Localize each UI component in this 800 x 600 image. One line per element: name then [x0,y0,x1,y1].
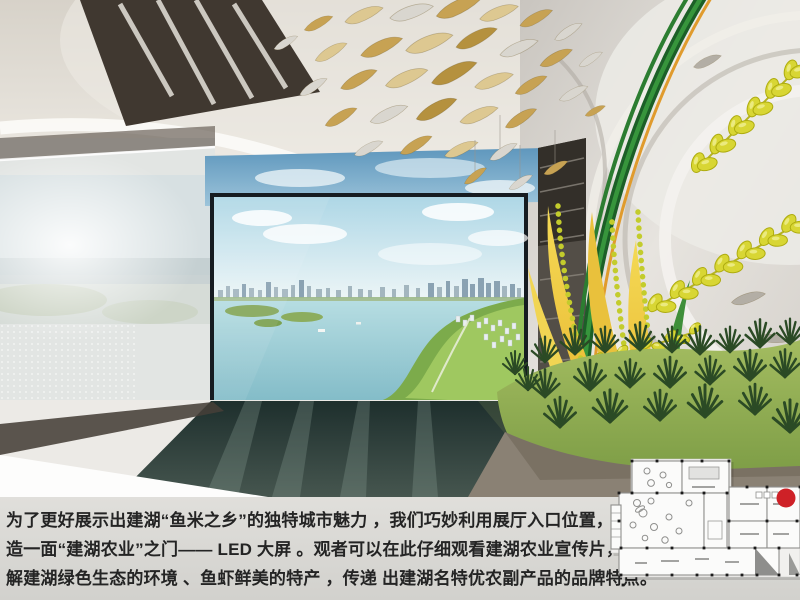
exhibition-hall-rendering [0,0,800,497]
portfolio-page: 为了更好展示出建湖“鱼米之乡”的独特城市魅力 ，我们巧妙利用展厅入口位置，创新打… [0,0,800,600]
led-screen-content [214,197,528,401]
floor-plan-inset [607,443,800,600]
led-screen [210,193,528,404]
left-reflective-wall [0,126,215,433]
location-marker [777,489,796,508]
